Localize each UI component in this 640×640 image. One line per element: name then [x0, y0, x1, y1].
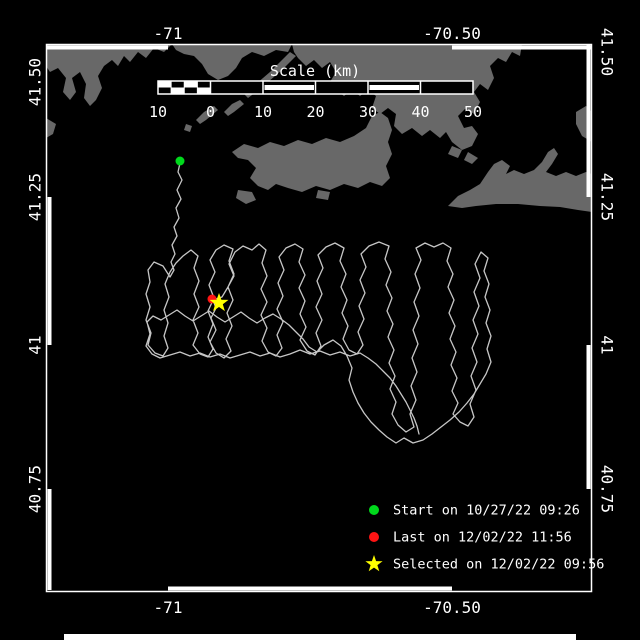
legend-start-dot-icon — [369, 505, 379, 515]
border-segment-left — [48, 197, 52, 345]
scale-bar-number: 40 — [411, 103, 429, 121]
axis-label-top: -70.50 — [423, 24, 481, 43]
legend-label: Selected on 12/02/22 09:56 — [393, 557, 604, 573]
axis-label-left: 40.75 — [26, 465, 45, 513]
legend-label: Last on 12/02/22 11:56 — [393, 530, 572, 546]
border-segment-left — [48, 489, 52, 590]
border-segment-right — [587, 345, 591, 489]
land-polygon — [232, 112, 392, 192]
land-polygon — [46, 118, 56, 138]
scale-bar-number: 30 — [359, 103, 377, 121]
axis-label-top: -71 — [154, 24, 183, 43]
scale-bar-title: Scale (km) — [270, 62, 360, 80]
scale-bar-number: 0 — [206, 103, 215, 121]
scale-bar-number: 10 — [149, 103, 167, 121]
land-polygon — [464, 152, 478, 164]
scale-bar-number: 10 — [254, 103, 272, 121]
land-polygon — [224, 100, 244, 116]
scale-bar-stripe — [370, 85, 420, 90]
border-segment-bottom — [168, 587, 452, 591]
track-line — [146, 163, 491, 443]
track-layer — [146, 163, 491, 443]
legend-item: Last on 12/02/22 11:56 — [369, 530, 572, 546]
map-canvas[interactable]: -71-70.50-71-70.5041.5041.254140.7541.50… — [0, 0, 640, 640]
axis-label-right: 41.25 — [598, 173, 617, 221]
land-polygon — [292, 44, 522, 150]
scale-bar-checker-cell — [184, 81, 197, 88]
scale-bar-number: 50 — [464, 103, 482, 121]
axis-label-left: 41.50 — [26, 58, 45, 106]
track-markers — [176, 157, 229, 312]
axis-label-left: 41.25 — [26, 173, 45, 221]
axis-label-right: 41 — [598, 335, 617, 354]
land-polygon — [316, 190, 330, 200]
track-map-window: -71-70.50-71-70.5041.5041.254140.7541.50… — [0, 0, 640, 640]
scale-bar-checker-cell — [197, 88, 210, 95]
legend-selected-star-icon — [365, 555, 382, 571]
axis-label-right: 40.75 — [598, 465, 617, 513]
scale-bar-number: 20 — [306, 103, 324, 121]
border-segment-right — [587, 44, 591, 197]
land-polygon — [184, 124, 192, 132]
scale-bar-checker-cell — [158, 81, 171, 88]
land-polygon — [46, 44, 172, 106]
legend-last-dot-icon — [369, 532, 379, 542]
start-marker[interactable] — [176, 157, 185, 166]
legend-item: Start on 10/27/22 09:26 — [369, 503, 580, 519]
legend-label: Start on 10/27/22 09:26 — [393, 503, 580, 519]
legend: Start on 10/27/22 09:26Last on 12/02/22 … — [365, 503, 604, 573]
bottom-edge-bar — [64, 634, 576, 640]
land-polygon — [236, 190, 256, 204]
legend-item: Selected on 12/02/22 09:56 — [365, 555, 604, 573]
border-segment-top — [47, 46, 168, 50]
scale-bar-stripe — [265, 85, 315, 90]
scale-bar-checker-cell — [171, 88, 184, 95]
border-segment-top — [452, 46, 592, 50]
axis-label-bottom: -71 — [154, 598, 183, 617]
axis-label-left: 41 — [26, 335, 45, 354]
axis-label-right: 41.50 — [598, 28, 617, 76]
axis-label-bottom: -70.50 — [423, 598, 481, 617]
